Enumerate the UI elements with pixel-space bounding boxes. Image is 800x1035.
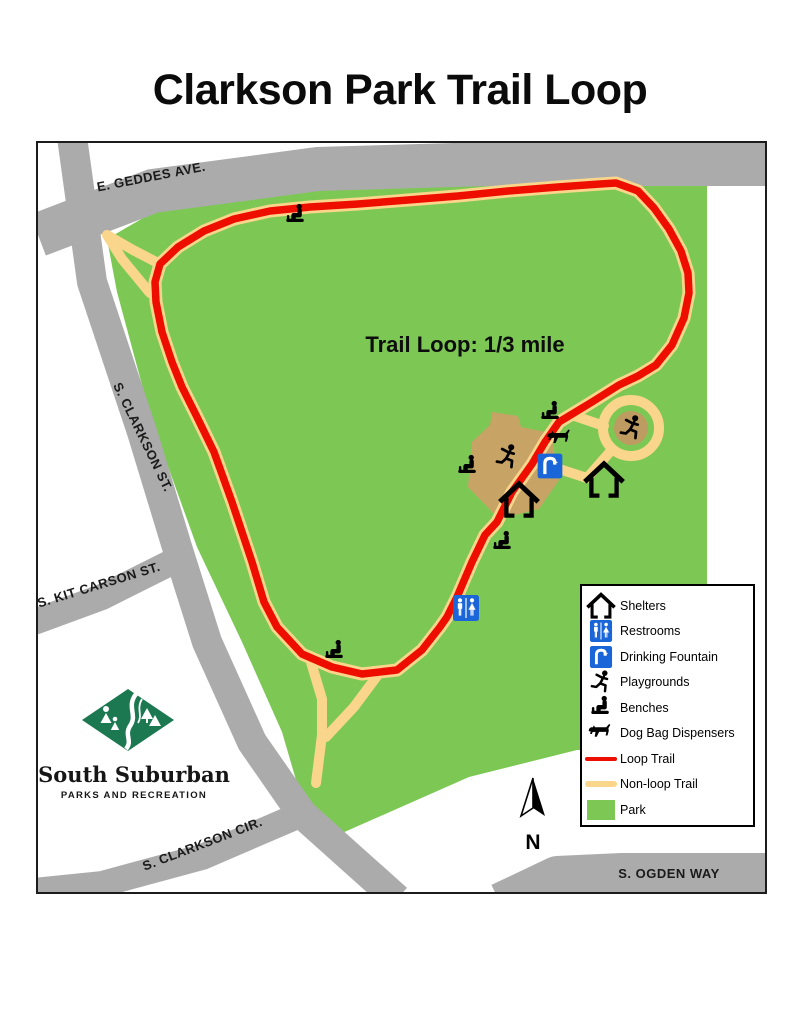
street-label-ogden: S. OGDEN WAY — [618, 866, 720, 881]
park-swatch — [582, 800, 620, 820]
dog-bag-icon — [582, 720, 620, 746]
playground-icon — [582, 669, 620, 695]
legend-row-dog-bags: Dog Bag Dispensers — [582, 721, 753, 747]
org-name: South Suburban — [38, 762, 230, 787]
trail-distance-annotation: Trail Loop: 1/3 mile — [365, 332, 564, 357]
restroom-icon — [453, 595, 479, 621]
org-logo-icon — [82, 689, 174, 751]
legend-row-park: Park — [582, 797, 753, 823]
bench-icon — [582, 695, 620, 721]
legend-row-restrooms: Restrooms — [582, 619, 753, 645]
north-label: N — [525, 831, 540, 854]
legend-row-shelters: Shelters — [582, 593, 753, 619]
legend-row-playgrounds: Playgrounds — [582, 670, 753, 696]
shelter-icon — [582, 591, 620, 621]
drinking-fountain-icon — [582, 644, 620, 670]
legend: Shelters Restrooms Drinking Fountain Pla… — [580, 584, 755, 827]
org-logo: South Suburban PARKS AND RECREATION — [38, 689, 230, 801]
restroom-icon — [582, 618, 620, 644]
page-title: Clarkson Park Trail Loop — [0, 66, 800, 115]
drinking-fountain-icon — [538, 454, 563, 479]
map-frame: E. GEDDES AVE. S. CLARKSON ST. S. KIT CA… — [36, 141, 767, 894]
loop-trail-line — [582, 757, 620, 761]
park-trail-map-page: Clarkson Park Trail Loop — [0, 0, 800, 1035]
legend-row-nonloop-trail: Non-loop Trail — [582, 772, 753, 798]
legend-row-loop-trail: Loop Trail — [582, 746, 753, 772]
north-arrow-icon — [521, 778, 545, 816]
legend-row-drinking-fountain: Drinking Fountain — [582, 644, 753, 670]
org-tagline: PARKS AND RECREATION — [61, 790, 207, 801]
legend-row-benches: Benches — [582, 695, 753, 721]
nonloop-trail-line — [582, 781, 620, 787]
